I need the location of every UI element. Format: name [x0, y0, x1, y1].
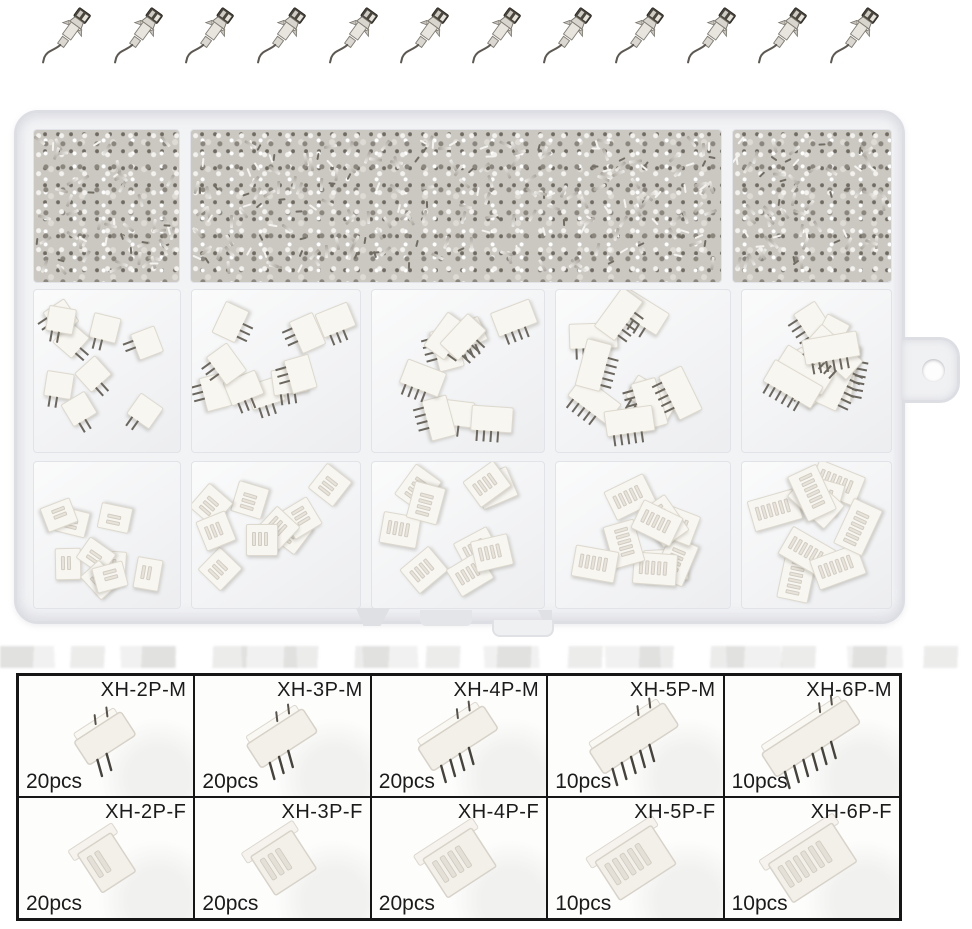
female-connector: [246, 524, 278, 556]
terminal-item: [181, 2, 239, 82]
pin: [191, 384, 202, 389]
crimp-bit: [512, 214, 516, 227]
male-connector: [470, 404, 514, 433]
crimp-bit: [735, 257, 742, 270]
crimp-bit: [397, 204, 401, 213]
crimp-bit: [253, 187, 261, 200]
connector-type-label: XH-5P-M: [630, 679, 716, 702]
crimp-bit: [528, 210, 537, 223]
pin: [47, 396, 51, 407]
crimp-bit: [854, 165, 862, 172]
crimp-bit: [230, 215, 233, 228]
pin: [583, 411, 591, 421]
crimp-bit: [755, 245, 764, 248]
crimp-bit: [259, 234, 264, 241]
crimp-bit: [105, 237, 108, 246]
crimp-bit: [686, 136, 697, 148]
pin: [238, 403, 244, 414]
pin: [272, 403, 277, 414]
crimp-bit: [583, 217, 595, 227]
crimp-bit: [680, 229, 689, 234]
crimp-bit: [66, 209, 79, 216]
male-connector-compartment: [555, 289, 731, 453]
slot: [596, 556, 602, 570]
crimp-bit: [779, 178, 786, 182]
crimp-bit: [779, 207, 790, 219]
crimp-bit: [702, 160, 707, 167]
crimp-terminal-icon: [469, 2, 525, 80]
slot: [662, 562, 667, 576]
crimp-bit: [703, 240, 706, 247]
crimp-bit: [834, 239, 841, 244]
crimp-bit: [82, 251, 91, 264]
male-connector: [212, 300, 250, 343]
terminal-item: [253, 2, 311, 82]
crimp-bit: [772, 235, 781, 239]
pin: [125, 347, 136, 353]
crimp-bit: [704, 209, 717, 216]
crimp-bit: [425, 200, 427, 207]
slot: [61, 556, 65, 570]
male-connector: [126, 392, 164, 429]
crimp-bit: [631, 177, 642, 189]
pin: [456, 425, 459, 436]
pin: [84, 419, 91, 429]
crimp-bit: [277, 181, 281, 194]
female-connector-compartment: [33, 461, 181, 609]
spec-cell: XH-4P-M 20pcs: [372, 676, 546, 796]
slot: [578, 553, 584, 567]
piece-count-label: 10pcs: [732, 770, 788, 794]
pin: [265, 405, 270, 416]
crimp-terminal-icon: [39, 2, 95, 80]
pin: [838, 404, 849, 410]
crimp-bit: [787, 174, 798, 185]
crimp-bit: [421, 185, 434, 190]
crimp-bit: [250, 176, 261, 188]
crimp-bit: [66, 231, 79, 241]
crimp-bit: [375, 182, 380, 191]
pin: [490, 431, 493, 442]
crimp-bit: [784, 158, 791, 163]
slot: [584, 554, 590, 568]
crimp-bit: [316, 153, 319, 160]
pin: [607, 357, 618, 362]
pin: [418, 427, 429, 432]
crimp-terminal-icon: [612, 2, 668, 80]
crimp-bit: [368, 157, 381, 162]
crimp-terminal-icon: [111, 2, 167, 80]
pin: [427, 358, 438, 363]
crimp-bit: [101, 143, 111, 155]
crimp-bit: [35, 238, 38, 245]
pin: [282, 327, 293, 333]
pin: [80, 347, 90, 356]
pin: [620, 434, 624, 445]
crimp-bit: [346, 173, 351, 180]
crimp-bit: [335, 168, 339, 181]
crimp-bit: [479, 162, 491, 173]
crimp-bit: [825, 167, 838, 176]
pin: [237, 335, 248, 341]
crimp-bit: [710, 256, 715, 269]
crimp-bit: [842, 229, 847, 238]
pin: [795, 331, 805, 339]
pin: [781, 394, 788, 405]
crimp-bit: [299, 250, 304, 257]
crimp-bit: [862, 190, 875, 197]
crimp-bit: [623, 199, 627, 208]
male-connector: [45, 305, 77, 335]
crimp-bit: [702, 143, 705, 156]
terminal-item: [396, 2, 454, 82]
crimp-bit: [169, 227, 175, 240]
female-connector: [570, 544, 619, 583]
pin: [788, 319, 798, 327]
crimp-bit: [239, 207, 249, 219]
female-connector-compartment: [191, 461, 361, 609]
crimp-bit: [562, 219, 564, 226]
male-connector: [490, 299, 539, 338]
crimp-bit: [226, 261, 230, 274]
crimp-bit: [321, 198, 334, 206]
crimp-bit: [216, 246, 223, 259]
crimp-bit: [547, 204, 560, 211]
pin: [416, 420, 427, 425]
crimp-bit: [39, 236, 52, 245]
crimp-bit: [457, 247, 464, 252]
pin: [96, 387, 105, 397]
spec-cell: XH-6P-F 10pcs: [725, 798, 899, 918]
male-connector: [74, 355, 112, 393]
crimp-terminal-icon: [397, 2, 453, 80]
male-connector: [43, 370, 75, 400]
pin: [641, 431, 645, 442]
slot: [107, 513, 122, 520]
crimp-bit: [800, 256, 804, 269]
crimp-bit: [674, 165, 684, 177]
crimp-bit: [773, 173, 786, 177]
pin: [101, 382, 110, 392]
terminal-item: [539, 2, 597, 82]
crimp-bit: [537, 143, 541, 150]
pin: [588, 415, 596, 425]
crimp-terminal-icon: [326, 2, 382, 80]
pin: [600, 384, 611, 389]
crimp-bit: [777, 199, 780, 206]
slot: [398, 522, 404, 536]
crimp-bit: [618, 215, 628, 228]
pin: [123, 340, 134, 346]
crimp-bit: [242, 193, 249, 197]
crimp-bit: [77, 174, 89, 184]
pin: [769, 387, 776, 398]
female-connector: [230, 480, 270, 520]
terminal-item: [468, 2, 526, 82]
slot: [644, 560, 649, 574]
pin: [787, 397, 794, 408]
crimp-bit: [829, 191, 833, 198]
pin: [762, 383, 769, 394]
slot: [258, 532, 262, 546]
crimp-bit: [109, 266, 122, 273]
connector-type-label: XH-6P-F: [811, 801, 892, 824]
crimp-bit: [406, 213, 415, 226]
crimp-bit: [515, 245, 518, 254]
male-connector-compartment: [191, 289, 361, 453]
crimp-bit: [511, 155, 521, 167]
crimp-bit: [295, 182, 303, 195]
crimp-bit: [482, 229, 491, 233]
pin: [192, 391, 203, 396]
connector-type-label: XH-3P-M: [277, 679, 363, 702]
crimp-bit: [192, 227, 203, 238]
connector-type-label: XH-2P-F: [105, 801, 186, 824]
female-connector-compartment: [371, 461, 545, 609]
crimp-bit: [141, 241, 148, 244]
pin: [92, 338, 97, 349]
pin: [621, 329, 631, 337]
crimp-bit: [752, 151, 759, 164]
crimp-terminal-icon: [684, 2, 740, 80]
slot: [392, 521, 398, 535]
crimp-bit: [389, 183, 401, 193]
crimp-bit: [199, 187, 201, 194]
crimp-bit: [375, 226, 383, 239]
crimp-bit: [595, 243, 601, 256]
pin: [518, 329, 524, 340]
male-connector: [130, 325, 164, 360]
slot: [650, 561, 655, 575]
terminal-item: [754, 2, 812, 82]
hanging-hole: [922, 359, 945, 382]
spec-cell: XH-4P-F 20pcs: [372, 798, 546, 918]
pin: [476, 430, 479, 441]
pin: [336, 332, 342, 343]
pin: [240, 329, 251, 335]
pin: [497, 431, 500, 442]
crimp-bit: [546, 192, 555, 197]
crimp-bit: [844, 237, 852, 250]
pin: [330, 334, 336, 345]
crimp-bit: [566, 191, 579, 200]
crimp-bit: [52, 142, 54, 151]
pin: [131, 420, 139, 430]
pin: [243, 323, 254, 329]
connector-type-label: XH-4P-M: [453, 679, 539, 702]
crimp-bit: [344, 163, 356, 174]
crimp-bit: [246, 168, 251, 177]
crimp-bit: [201, 245, 213, 256]
crimp-bit: [347, 247, 353, 260]
crimp-bit: [480, 145, 489, 150]
pin: [483, 430, 486, 441]
crimp-bit: [744, 214, 756, 224]
crimp-bit: [224, 246, 235, 258]
crimp-bit: [160, 136, 171, 148]
male-connector: [88, 312, 121, 344]
piece-count-label: 20pcs: [26, 892, 82, 916]
crimp-bit: [56, 264, 67, 276]
slot: [67, 556, 71, 570]
crimp-bit: [792, 256, 795, 263]
pin: [613, 435, 617, 446]
crimp-bit: [468, 167, 474, 173]
crimp-bit: [808, 166, 821, 174]
female-connector: [399, 546, 449, 595]
piece-count-label: 10pcs: [555, 892, 611, 916]
crimp-bit: [597, 138, 610, 144]
slot: [252, 532, 256, 546]
crimp-bit: [868, 165, 876, 172]
crimp-bit: [470, 237, 473, 250]
terminal-item: [38, 2, 96, 82]
crimp-bit: [737, 136, 744, 144]
crimp-bit: [770, 155, 777, 161]
crimp-bit: [367, 211, 371, 224]
crimp-terminal-icon: [254, 2, 310, 80]
crimp-bit: [408, 262, 410, 269]
crimp-compartment: [732, 129, 892, 283]
crimp-bit: [788, 146, 800, 157]
crimp-bit: [580, 196, 589, 209]
crimp-bit: [34, 136, 46, 146]
slot: [264, 532, 268, 546]
crimp-bit: [591, 166, 598, 168]
crimp-bit: [37, 214, 50, 220]
pin: [414, 389, 420, 400]
crimp-bit: [166, 174, 175, 187]
crimp-bit: [708, 142, 710, 151]
crimp-terminal-icon: [755, 2, 811, 80]
crimp-bit: [689, 240, 702, 247]
connector-type-label: XH-4P-F: [458, 801, 539, 824]
crimp-bit: [743, 230, 749, 239]
crimp-bit: [66, 193, 73, 206]
pin: [576, 348, 578, 359]
crimp-bit: [612, 170, 625, 178]
pin: [602, 377, 613, 382]
crimp-bit: [192, 254, 201, 259]
pin: [577, 407, 585, 417]
pin: [638, 327, 646, 337]
crimp-bit: [123, 222, 135, 232]
crimp-bit: [685, 162, 694, 167]
product-photo: XH-2P-M 20pcs XH-3P-M 20pcs XH-4P-M 20pc…: [0, 0, 972, 929]
crimp-bit: [673, 253, 682, 257]
box-hinge-part: [420, 610, 472, 626]
pin: [617, 335, 627, 343]
spec-cell: XH-3P-M 20pcs: [195, 676, 369, 796]
pin: [606, 364, 617, 369]
female-connector-compartment: [555, 461, 731, 609]
crimp-bit: [263, 249, 268, 258]
crimp-bit: [799, 224, 804, 237]
spec-cell: XH-5P-M 10pcs: [548, 676, 722, 796]
crimp-bit: [538, 259, 547, 272]
crimp-bit: [272, 154, 275, 161]
female-connector-compartment: [741, 461, 892, 609]
crimp-bit: [790, 193, 795, 206]
crimp-bit: [459, 204, 472, 210]
crimp-bit: [257, 144, 262, 151]
spec-cell: XH-2P-M 20pcs: [19, 676, 193, 796]
slot: [386, 520, 392, 534]
terminal-item: [110, 2, 168, 82]
crimp-bit: [363, 237, 366, 244]
crimp-bit: [669, 152, 681, 163]
crimp-bit: [296, 210, 303, 212]
crimp-bit: [380, 139, 390, 151]
crimp-bit: [263, 189, 276, 198]
crimp-bit: [477, 187, 481, 196]
crimp-bit: [684, 184, 687, 193]
crimp-bit: [308, 158, 314, 171]
crimp-bit: [431, 140, 434, 149]
crimp-bit: [382, 216, 392, 229]
connector-type-label: XH-5P-F: [634, 801, 715, 824]
crimp-bit: [801, 237, 808, 250]
crimp-bit: [449, 140, 458, 146]
crimp-bit: [268, 224, 277, 228]
crimp-bit: [320, 178, 324, 191]
piece-count-label: 10pcs: [732, 892, 788, 916]
pin: [194, 398, 205, 403]
crimp-bit: [607, 260, 614, 265]
slot: [601, 557, 607, 571]
connector-type-label: XH-3P-F: [282, 801, 363, 824]
crimp-bit: [354, 252, 359, 259]
crimp-bit: [88, 192, 95, 194]
male-connector-compartment: [33, 289, 181, 453]
crimp-bit: [130, 247, 132, 254]
pin: [201, 361, 211, 369]
pin: [287, 340, 298, 346]
crimp-bit: [93, 140, 102, 146]
crimp-bit: [792, 158, 799, 166]
piece-count-label: 10pcs: [555, 770, 611, 794]
slot: [146, 566, 152, 580]
crimp-bit: [347, 141, 354, 154]
crimp-bit: [254, 162, 261, 171]
slot: [590, 555, 596, 569]
pin: [511, 332, 517, 343]
crimp-bit: [443, 236, 450, 249]
pin: [343, 329, 349, 340]
pin: [856, 368, 867, 372]
female-connector: [97, 502, 134, 534]
crimp-bit: [54, 187, 67, 193]
crimp-bit: [268, 166, 280, 176]
male-connector-compartment: [371, 289, 545, 453]
pin: [407, 386, 413, 397]
crimp-bit: [460, 211, 466, 224]
crimp-bit: [137, 252, 142, 265]
crimp-bit: [771, 140, 778, 153]
crimp-compartment: [33, 129, 180, 283]
pin: [401, 384, 407, 395]
pin: [286, 393, 290, 404]
crimp-bit: [205, 257, 210, 264]
spec-cell: XH-6P-M 10pcs: [725, 676, 899, 796]
pin: [634, 432, 638, 443]
crimp-bit: [282, 223, 294, 233]
crimp-terminal-icon: [182, 2, 238, 80]
hanging-tab: [902, 337, 960, 403]
crimp-bit: [485, 156, 494, 158]
slot: [403, 523, 409, 537]
crimp-bit: [335, 237, 340, 250]
